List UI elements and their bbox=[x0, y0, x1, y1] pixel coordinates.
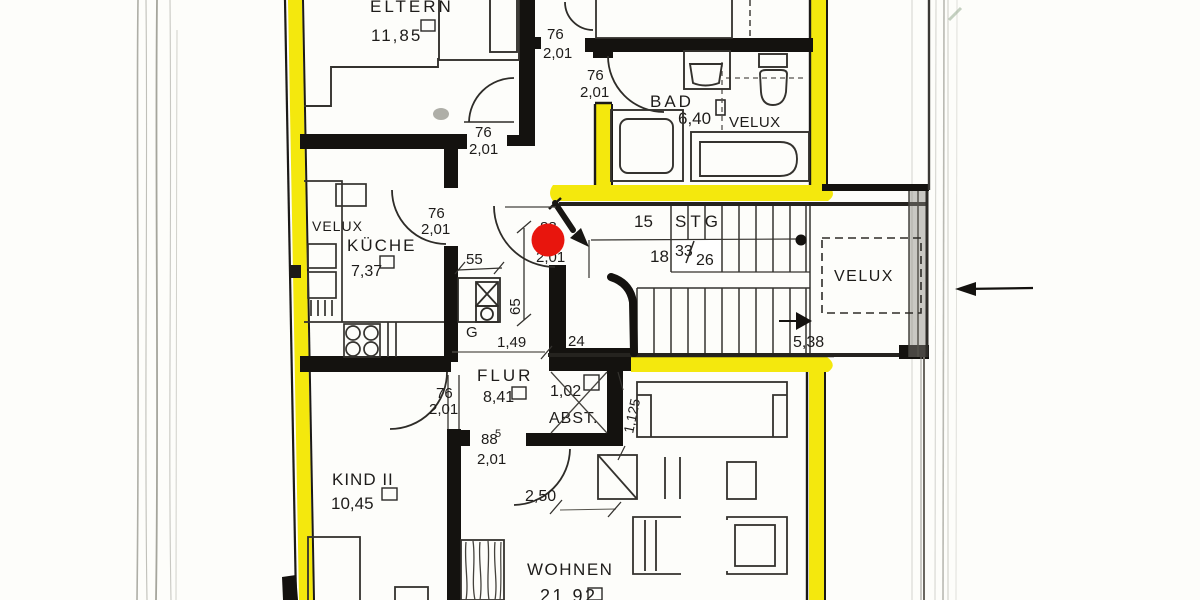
svg-text:KIND II: KIND II bbox=[332, 470, 394, 489]
svg-text:ELTERN: ELTERN bbox=[370, 0, 454, 16]
svg-text:FLUR: FLUR bbox=[477, 366, 533, 385]
svg-text:STG: STG bbox=[675, 212, 722, 231]
svg-text:KÜCHE: KÜCHE bbox=[347, 236, 417, 255]
svg-text:24: 24 bbox=[568, 333, 585, 350]
svg-text:2,01: 2,01 bbox=[469, 141, 498, 158]
svg-text:7,37: 7,37 bbox=[351, 263, 382, 280]
svg-text:VELUX: VELUX bbox=[729, 114, 781, 131]
svg-text:10,45: 10,45 bbox=[331, 494, 374, 513]
svg-text:2,01: 2,01 bbox=[477, 451, 506, 468]
svg-text:76: 76 bbox=[436, 385, 453, 402]
svg-text:ABST.: ABST. bbox=[549, 410, 598, 427]
svg-text:1,02: 1,02 bbox=[550, 383, 581, 400]
svg-text:11,85: 11,85 bbox=[371, 26, 422, 45]
svg-text:55: 55 bbox=[466, 251, 483, 268]
svg-text:VELUX: VELUX bbox=[834, 268, 894, 285]
svg-text:2,01: 2,01 bbox=[421, 221, 450, 238]
svg-text:5: 5 bbox=[495, 428, 501, 440]
svg-text:15: 15 bbox=[634, 212, 653, 231]
svg-text:76: 76 bbox=[428, 205, 445, 222]
svg-text:2,01: 2,01 bbox=[429, 401, 458, 418]
svg-text:8,41: 8,41 bbox=[483, 389, 514, 406]
svg-text:2,50: 2,50 bbox=[525, 488, 556, 505]
svg-text:1,49: 1,49 bbox=[497, 334, 526, 351]
svg-text:76: 76 bbox=[587, 67, 604, 84]
svg-text:65: 65 bbox=[507, 298, 524, 315]
svg-text:2,01: 2,01 bbox=[580, 84, 609, 101]
svg-text:5,38: 5,38 bbox=[793, 334, 824, 351]
svg-text:18: 18 bbox=[650, 247, 669, 266]
svg-text:VELUX: VELUX bbox=[312, 218, 363, 234]
svg-text:76: 76 bbox=[475, 124, 492, 141]
svg-text:2,01: 2,01 bbox=[543, 45, 572, 62]
svg-text:26: 26 bbox=[696, 252, 714, 269]
svg-text:WOHNEN: WOHNEN bbox=[527, 560, 613, 579]
svg-text:76: 76 bbox=[547, 26, 564, 43]
svg-text:G: G bbox=[466, 324, 478, 341]
